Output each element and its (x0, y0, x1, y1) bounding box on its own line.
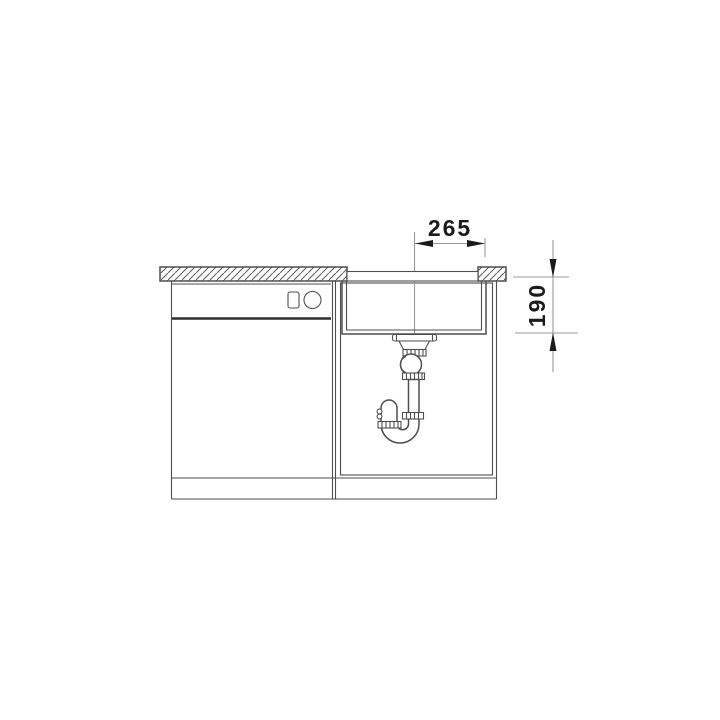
adjacent-cabinet (172, 281, 332, 499)
cabinet-knob-circle (304, 292, 321, 309)
drain-assembly (377, 335, 436, 444)
trap-cap-ear-bottom (377, 414, 382, 419)
countertop-right-hatched-block (478, 267, 506, 281)
p-trap-pipe (381, 380, 419, 444)
cabinet-handle-rect (288, 292, 299, 308)
drain-strainer-cup (399, 341, 430, 350)
sink-rim-band (347, 272, 478, 282)
cabinet-divider (333, 281, 336, 499)
drain-flange (393, 335, 437, 342)
coupling-nut-mid (403, 373, 425, 380)
countertop-left-hatched-block (160, 267, 347, 281)
dim265-right-arrow (467, 240, 485, 247)
coupling-nut-stub (378, 422, 401, 429)
trap-cap-ear-top (377, 409, 382, 414)
dimension-depth-label: 190 (524, 283, 550, 327)
dimension-width-label: 265 (428, 215, 472, 241)
dim190-top-arrow (550, 259, 557, 278)
coupling-nut-pipe (403, 413, 424, 420)
dim190-bottom-arrow (550, 333, 557, 352)
dimension-190: 190 (513, 240, 578, 372)
cabinet-plinth (172, 478, 497, 499)
sink-section-drawing: 265 190 (0, 0, 720, 720)
technical-drawing-canvas: 265 190 (0, 0, 720, 720)
dimension-265: 265 (415, 215, 485, 257)
dim265-left-arrow (415, 240, 433, 247)
